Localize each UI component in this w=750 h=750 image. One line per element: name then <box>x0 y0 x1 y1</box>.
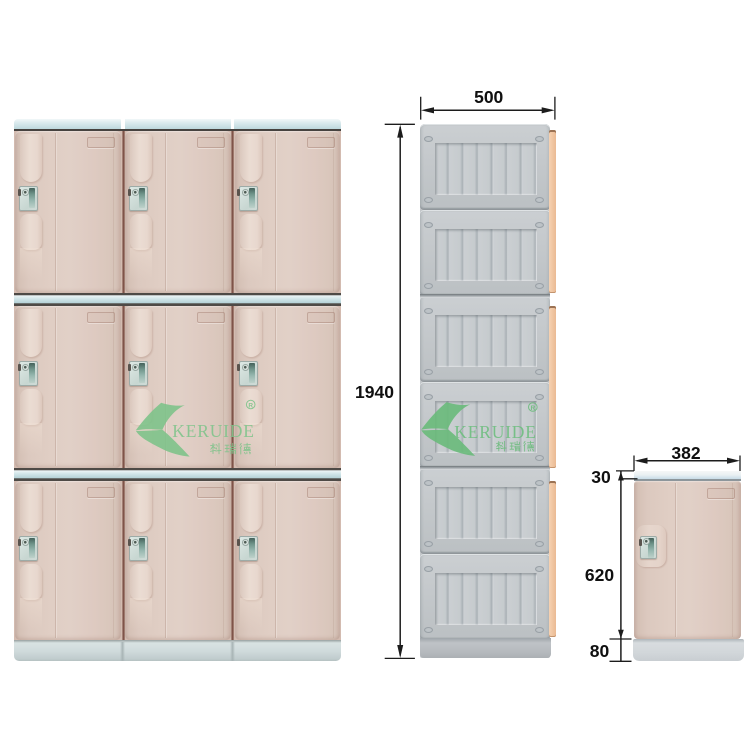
svg-text:KERUIDE: KERUIDE <box>454 422 536 442</box>
svg-text:500: 500 <box>474 87 503 107</box>
svg-text:382: 382 <box>671 443 700 463</box>
svg-text:620: 620 <box>585 565 614 585</box>
svg-text:1940: 1940 <box>355 382 394 402</box>
svg-text:KERUIDE: KERUIDE <box>172 421 254 441</box>
svg-text:80: 80 <box>590 641 610 661</box>
svg-text:R: R <box>530 405 535 412</box>
svg-text:30: 30 <box>591 467 611 487</box>
svg-text:R: R <box>248 403 253 410</box>
